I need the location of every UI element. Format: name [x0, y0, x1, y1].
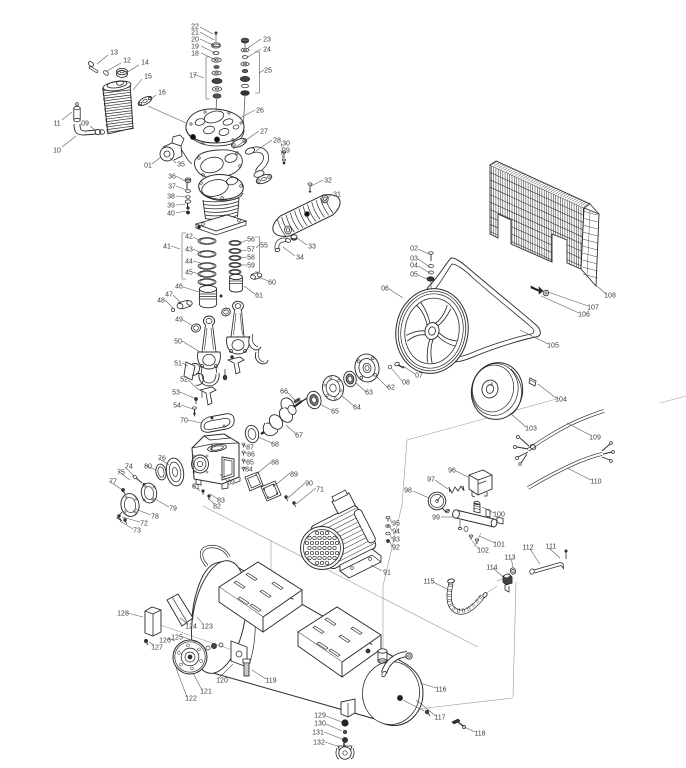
- svg-text:02: 02: [410, 245, 418, 252]
- svg-text:70: 70: [180, 417, 188, 424]
- svg-text:38: 38: [167, 193, 175, 200]
- svg-text:128: 128: [117, 610, 129, 617]
- svg-text:16: 16: [158, 89, 166, 96]
- svg-text:119: 119: [265, 677, 276, 684]
- svg-text:45: 45: [185, 269, 193, 276]
- svg-text:57: 57: [247, 246, 255, 253]
- svg-text:46: 46: [175, 283, 183, 290]
- svg-text:106: 106: [578, 311, 590, 318]
- svg-text:87: 87: [246, 444, 254, 451]
- svg-text:06: 06: [381, 285, 389, 292]
- svg-text:44: 44: [185, 258, 193, 265]
- svg-text:52: 52: [180, 376, 188, 383]
- svg-text:95: 95: [392, 520, 400, 527]
- svg-text:67: 67: [295, 432, 303, 439]
- svg-text:24: 24: [263, 46, 271, 53]
- svg-text:51: 51: [174, 360, 182, 367]
- svg-text:30: 30: [282, 140, 290, 147]
- svg-text:29: 29: [282, 147, 290, 154]
- svg-text:66: 66: [280, 388, 288, 395]
- svg-text:111: 111: [546, 543, 557, 550]
- svg-text:22: 22: [191, 23, 199, 30]
- svg-text:08: 08: [402, 379, 410, 386]
- svg-text:132: 132: [313, 739, 325, 746]
- svg-text:48: 48: [157, 297, 165, 304]
- svg-text:82: 82: [213, 503, 221, 510]
- svg-text:68: 68: [271, 441, 279, 448]
- svg-text:72: 72: [140, 520, 148, 527]
- svg-text:94: 94: [392, 528, 400, 535]
- svg-text:102: 102: [477, 547, 489, 554]
- svg-text:34: 34: [296, 254, 304, 261]
- svg-text:13: 13: [110, 49, 118, 56]
- svg-text:123: 123: [201, 623, 213, 630]
- svg-text:129: 129: [314, 712, 326, 719]
- svg-text:91: 91: [383, 569, 391, 576]
- svg-text:64: 64: [353, 404, 361, 411]
- svg-text:69: 69: [227, 479, 235, 486]
- svg-text:78: 78: [151, 513, 159, 520]
- svg-text:42: 42: [185, 233, 193, 240]
- svg-text:63: 63: [365, 389, 373, 396]
- svg-text:18: 18: [191, 50, 199, 57]
- svg-text:41: 41: [163, 243, 171, 250]
- svg-text:88: 88: [271, 459, 279, 466]
- svg-text:01: 01: [144, 162, 152, 169]
- svg-text:74: 74: [125, 463, 133, 470]
- svg-text:98: 98: [404, 487, 412, 494]
- svg-text:84: 84: [245, 466, 253, 473]
- svg-text:107: 107: [587, 304, 599, 311]
- svg-text:19: 19: [191, 43, 199, 50]
- svg-text:85: 85: [246, 459, 254, 466]
- svg-text:26: 26: [256, 107, 264, 114]
- svg-text:32: 32: [324, 177, 332, 184]
- svg-text:28: 28: [273, 137, 281, 144]
- svg-text:27: 27: [260, 128, 268, 135]
- svg-text:116: 116: [435, 686, 446, 693]
- svg-text:86: 86: [247, 451, 255, 458]
- svg-text:60: 60: [268, 279, 276, 286]
- svg-text:90: 90: [305, 480, 313, 487]
- svg-text:124: 124: [185, 623, 197, 630]
- svg-text:58: 58: [247, 254, 255, 261]
- svg-text:117: 117: [434, 714, 445, 721]
- svg-text:112: 112: [522, 544, 533, 551]
- svg-text:53: 53: [172, 389, 180, 396]
- svg-text:56: 56: [247, 236, 255, 243]
- svg-text:115: 115: [423, 578, 434, 585]
- svg-text:118: 118: [474, 730, 485, 737]
- svg-text:83: 83: [217, 497, 225, 504]
- svg-text:127: 127: [151, 644, 163, 651]
- svg-text:99: 99: [432, 514, 440, 521]
- svg-text:103: 103: [525, 425, 537, 432]
- svg-text:21: 21: [191, 29, 199, 36]
- svg-text:17: 17: [189, 72, 197, 79]
- svg-text:50: 50: [174, 338, 182, 345]
- svg-text:59: 59: [247, 262, 255, 269]
- svg-text:12: 12: [123, 57, 131, 64]
- svg-text:80: 80: [144, 463, 152, 470]
- svg-text:11: 11: [53, 120, 60, 127]
- svg-text:130: 130: [314, 720, 326, 727]
- svg-text:92: 92: [392, 544, 400, 551]
- svg-text:113: 113: [504, 554, 515, 561]
- svg-text:05: 05: [410, 271, 418, 278]
- svg-text:23: 23: [263, 36, 271, 43]
- svg-text:54: 54: [173, 402, 181, 409]
- svg-text:61: 61: [255, 292, 263, 299]
- svg-text:04: 04: [410, 262, 418, 269]
- svg-text:10: 10: [53, 147, 61, 154]
- svg-text:03: 03: [410, 255, 418, 262]
- svg-text:43: 43: [185, 246, 193, 253]
- svg-text:20: 20: [191, 36, 199, 43]
- svg-text:73: 73: [133, 527, 141, 534]
- svg-text:49: 49: [175, 316, 183, 323]
- svg-text:104: 104: [555, 396, 567, 403]
- svg-text:110: 110: [590, 478, 601, 485]
- svg-text:07: 07: [415, 372, 423, 379]
- svg-text:79: 79: [169, 505, 177, 512]
- svg-text:89: 89: [290, 471, 298, 478]
- svg-text:120: 120: [216, 677, 228, 684]
- svg-text:40: 40: [167, 210, 175, 217]
- svg-text:100: 100: [493, 511, 505, 518]
- svg-text:93: 93: [392, 536, 400, 543]
- svg-text:25: 25: [264, 67, 272, 74]
- svg-text:36: 36: [168, 173, 176, 180]
- svg-text:47: 47: [165, 291, 173, 298]
- svg-text:35: 35: [177, 161, 185, 168]
- svg-text:105: 105: [547, 342, 559, 349]
- svg-text:37: 37: [168, 183, 176, 190]
- svg-text:108: 108: [604, 292, 616, 299]
- svg-text:55: 55: [260, 242, 268, 249]
- svg-text:39: 39: [167, 202, 175, 209]
- svg-text:62: 62: [387, 384, 395, 391]
- svg-text:131: 131: [312, 729, 324, 736]
- svg-text:33: 33: [308, 243, 316, 250]
- svg-text:14: 14: [141, 59, 149, 66]
- svg-text:96: 96: [448, 467, 456, 474]
- svg-text:31: 31: [333, 191, 341, 198]
- svg-text:81: 81: [192, 483, 200, 490]
- svg-text:71: 71: [316, 486, 324, 493]
- svg-text:97: 97: [427, 476, 435, 483]
- svg-text:109: 109: [589, 434, 601, 441]
- svg-text:09: 09: [81, 120, 89, 127]
- svg-text:15: 15: [144, 73, 152, 80]
- svg-text:101: 101: [493, 541, 505, 548]
- svg-text:65: 65: [331, 408, 339, 415]
